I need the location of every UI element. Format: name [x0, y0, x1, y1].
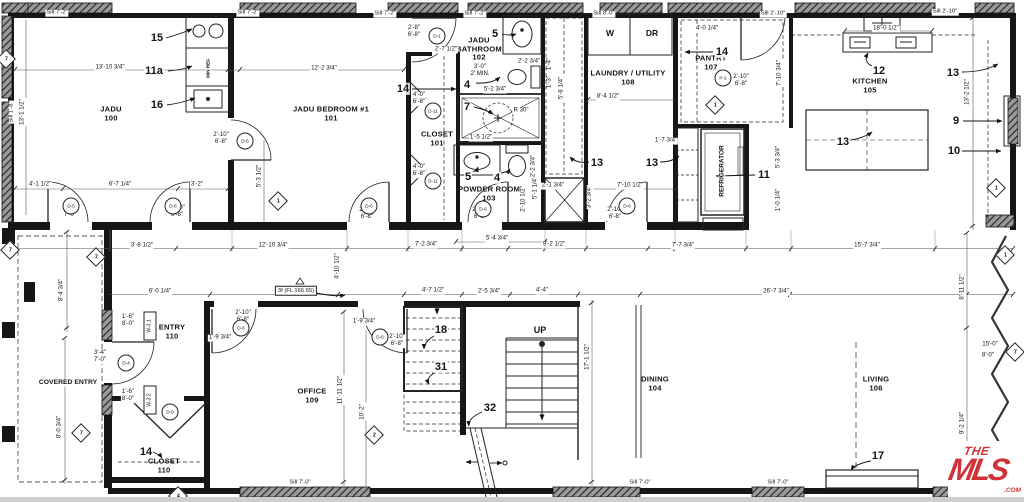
- dimension-label: 1'-6" 8'-0": [121, 314, 135, 328]
- dimension-label: 8'-11 1/2": [960, 273, 967, 300]
- room-label: OFFICE 109: [297, 388, 326, 405]
- dimension-label: 2'-10" 6'-8": [212, 132, 230, 146]
- window-tag: W-3.2: [144, 386, 157, 415]
- annotation-label: REFRIGERATOR: [718, 144, 725, 197]
- door-tag: D-6: [361, 198, 378, 215]
- dimension-label: 5'-3 1/2": [257, 164, 264, 188]
- dimension-label: 7'-10 3/4": [777, 59, 784, 87]
- door-tag: D-9: [162, 404, 179, 421]
- door-tag: D-11: [425, 103, 442, 120]
- mls-logo-com: .COM: [1004, 487, 1021, 494]
- dimension-label: 5'-8 1/4": [559, 76, 566, 100]
- dimension-label: 5'-4 3/4": [485, 236, 509, 243]
- sill-label: Sill 1'-8": [9, 100, 16, 123]
- window-tag: W-3.1: [144, 312, 157, 341]
- sill-label: Sill 7'-0": [628, 480, 651, 487]
- dimension-label: 1'-5 1/2": [469, 135, 493, 142]
- dimension-label: 13'-2 1/2": [965, 78, 972, 106]
- sill-label: Sill 2'-10": [760, 11, 787, 18]
- callout-number: 16: [150, 99, 164, 111]
- dimension-label: 1'-0 1/4": [776, 188, 783, 212]
- room-label: KITCHEN 105: [852, 78, 887, 95]
- callout-number: 4: [493, 172, 501, 184]
- callout-number: 18: [434, 324, 448, 336]
- door-tag: D-5: [63, 198, 80, 215]
- callout-number: 13: [590, 157, 604, 169]
- door-tag: P-2: [715, 70, 732, 87]
- room-label: DINING 104: [641, 376, 669, 393]
- annotation-label: W: [605, 29, 615, 39]
- dimension-label: 18'-0 1/2": [872, 26, 900, 33]
- dimension-label: 13'-10 3/4": [94, 65, 125, 72]
- sill-label: Sill 7'-2": [236, 10, 259, 17]
- room-label: CLOSET 101: [421, 131, 453, 148]
- dimension-label: 2'-10 1/2": [521, 185, 528, 213]
- sill-label: Sill 7'-2": [373, 11, 396, 18]
- dimension-label: 2'-10" 6'-8": [732, 74, 750, 88]
- dimension-label: 4'-0" 6'-8": [412, 164, 426, 178]
- dimension-label: 3'-4" 7'-0": [93, 350, 107, 364]
- dimension-label: 2'-2 3/4": [517, 59, 541, 66]
- sill-label: Sill 7'-0": [766, 480, 789, 487]
- dimension-label: 8'-0": [981, 353, 995, 360]
- dimension-label: 7'-7 3/4": [671, 243, 695, 250]
- keynote-diamond: 1: [268, 191, 288, 211]
- callout-number: 17: [871, 450, 885, 462]
- annotation-label: MIN REF.: [205, 57, 210, 79]
- dimension-label: 4'-7 1/2": [421, 288, 445, 295]
- sill-label: Sill 8'-0": [592, 11, 615, 18]
- callout-number: 10: [947, 145, 961, 157]
- annotation-label: UP: [533, 325, 548, 335]
- callout-number: 32: [483, 402, 497, 414]
- mls-logo: THE MLS™ .COM: [948, 441, 1022, 497]
- dimension-label: 2'-2 3/4": [531, 154, 538, 178]
- keynote-diamond: 1: [705, 95, 725, 115]
- dimension-label: 9'-2 1/4": [960, 411, 967, 435]
- dimension-label: 5'-2 3/4": [483, 87, 507, 94]
- dimension-label: 7'-2 3/4": [414, 242, 438, 249]
- door-tag: D-11: [425, 173, 442, 190]
- callout-number: 14: [396, 83, 410, 95]
- door-tag: D-6: [237, 133, 254, 150]
- keynote-diamond: 7: [71, 423, 91, 443]
- dimension-label: 3'-8 1/2": [130, 243, 154, 250]
- dimension-label: 1'-6" 8'-0": [121, 389, 135, 403]
- keynote-diamond: 7: [1005, 342, 1024, 362]
- dimension-label: 4'-10 1/2": [335, 252, 342, 280]
- keynote-diamond: 7: [86, 247, 106, 267]
- keynote-diamond: 1: [995, 245, 1015, 265]
- callout-number: 11a: [144, 65, 164, 77]
- dimension-label: 8'-0 3/4": [57, 415, 64, 439]
- reference-tag: 3f (FL 166.65): [275, 286, 317, 296]
- dimension-label: 12'-10 3/4": [257, 243, 288, 250]
- dimension-label: 6'-0 1/4": [148, 289, 172, 296]
- dimension-label: 1'-3": [547, 75, 554, 89]
- annotation-label: DR: [645, 29, 659, 39]
- dimension-label: 2'-7 1/2": [434, 47, 458, 54]
- callout-number: 31: [434, 361, 448, 373]
- callout-number: 9: [952, 115, 960, 127]
- door-tag: D-6: [233, 320, 250, 337]
- callout-number: 15: [150, 32, 164, 44]
- dimension-label: 8'-4 1/2": [596, 94, 620, 101]
- dimension-label: 5'-1 1/4": [533, 176, 540, 200]
- dimension-label: 10'-2": [360, 403, 367, 421]
- room-label: POWDER ROOM 103: [458, 186, 520, 203]
- keynote-diamond: 2: [364, 425, 384, 445]
- dimension-label: 4'-0" 6'-8": [412, 92, 426, 106]
- callout-number: 13: [946, 67, 960, 79]
- dimension-label: 2'-8" 6'-8": [407, 25, 421, 39]
- sill-label: Sill 7'-2": [463, 11, 486, 18]
- sill-label: Sill 7'-2": [45, 10, 68, 17]
- callout-number: 13: [645, 157, 659, 169]
- dimension-label: 2'-1 3/4": [541, 183, 565, 190]
- dimension-label: 7'-10 1/2": [616, 183, 644, 190]
- dimension-label: 1'-9 3/4": [208, 335, 232, 342]
- callout-number: 14: [139, 446, 153, 458]
- dimension-label: 17'-1 1/2": [585, 343, 592, 371]
- callout-number: 5: [491, 28, 499, 40]
- door-tag: D-4: [118, 355, 135, 372]
- callout-number: 11: [757, 169, 771, 181]
- dimension-label: 3'-2": [190, 182, 204, 189]
- dimension-label: 1'-4": [547, 57, 554, 71]
- dimension-label: 4'-4": [535, 288, 549, 295]
- dimension-label: 26'-7 3/4": [762, 289, 790, 296]
- dimension-label: 4'-0 1/4": [695, 26, 719, 33]
- callout-number: 7: [463, 101, 471, 113]
- sill-label: Sill 2'-10": [932, 9, 959, 16]
- room-label: ENTRY 110: [159, 324, 185, 341]
- dimension-label: 12'-2 3/4": [310, 66, 338, 73]
- dimension-label: 9'-2 1/2": [542, 242, 566, 249]
- dimension-label: 1'-7 3/4": [654, 138, 678, 145]
- mls-logo-name: MLS™: [947, 458, 1024, 482]
- dimension-label: 15'-0": [981, 342, 999, 349]
- door-tag: D-6: [475, 201, 492, 218]
- room-label: JADU 100: [100, 106, 121, 123]
- door-tag: D-1: [429, 28, 446, 45]
- keynote-diamond: 7: [0, 240, 20, 260]
- callout-number: 12: [872, 65, 886, 77]
- sill-label: Sill 7'-0": [288, 480, 311, 487]
- door-tag: D-6: [372, 329, 389, 346]
- dimension-label: 3'-2 3/4": [587, 185, 594, 209]
- room-label: CLOSET 110: [148, 458, 180, 475]
- annotation-layer: JADU 100JADU BEDROOM #1 101JADU BATHROOM…: [0, 0, 1024, 502]
- keynote-diamond: 7: [0, 49, 16, 69]
- dimension-label: 5'-3 3/4": [776, 145, 783, 169]
- dimension-label: 15'-7 3/4": [853, 243, 881, 250]
- callout-number: 4: [463, 79, 471, 91]
- room-label: LIVING 106: [863, 376, 890, 393]
- sheet-edge: [0, 497, 1024, 502]
- keynote-diamond: 1: [986, 178, 1006, 198]
- dimension-label: R 30": [512, 108, 529, 115]
- dimension-label: 6'-7 1/4": [108, 182, 132, 189]
- dimension-label: 1'-9 3/4": [352, 319, 376, 326]
- annotation-label: COVERED ENTRY: [38, 379, 98, 387]
- door-tag: D-6: [165, 198, 182, 215]
- room-label: JADU BEDROOM #1 101: [293, 106, 369, 123]
- dimension-label: 4'-1 1/2": [28, 182, 52, 189]
- dimension-label: 2'-10" 6'-8": [388, 334, 406, 348]
- callout-number: 13: [836, 136, 850, 148]
- dimension-label: 8'-4 3/4": [59, 278, 66, 302]
- dimension-label: 3'-0" 2' MIN.: [469, 64, 490, 78]
- door-tag: D-6: [619, 198, 636, 215]
- callout-number: 5: [464, 171, 472, 183]
- dimension-label: 11'-11 1/2": [338, 375, 345, 405]
- dimension-label: 13'-1 1/2": [20, 98, 27, 126]
- callout-number: 14: [715, 46, 729, 58]
- room-label: LAUNDRY / UTILITY 108: [590, 70, 665, 87]
- dimension-label: 2'-5 3/4": [477, 289, 501, 296]
- floor-plan-sheet: JADU 100JADU BEDROOM #1 101JADU BATHROOM…: [0, 0, 1024, 502]
